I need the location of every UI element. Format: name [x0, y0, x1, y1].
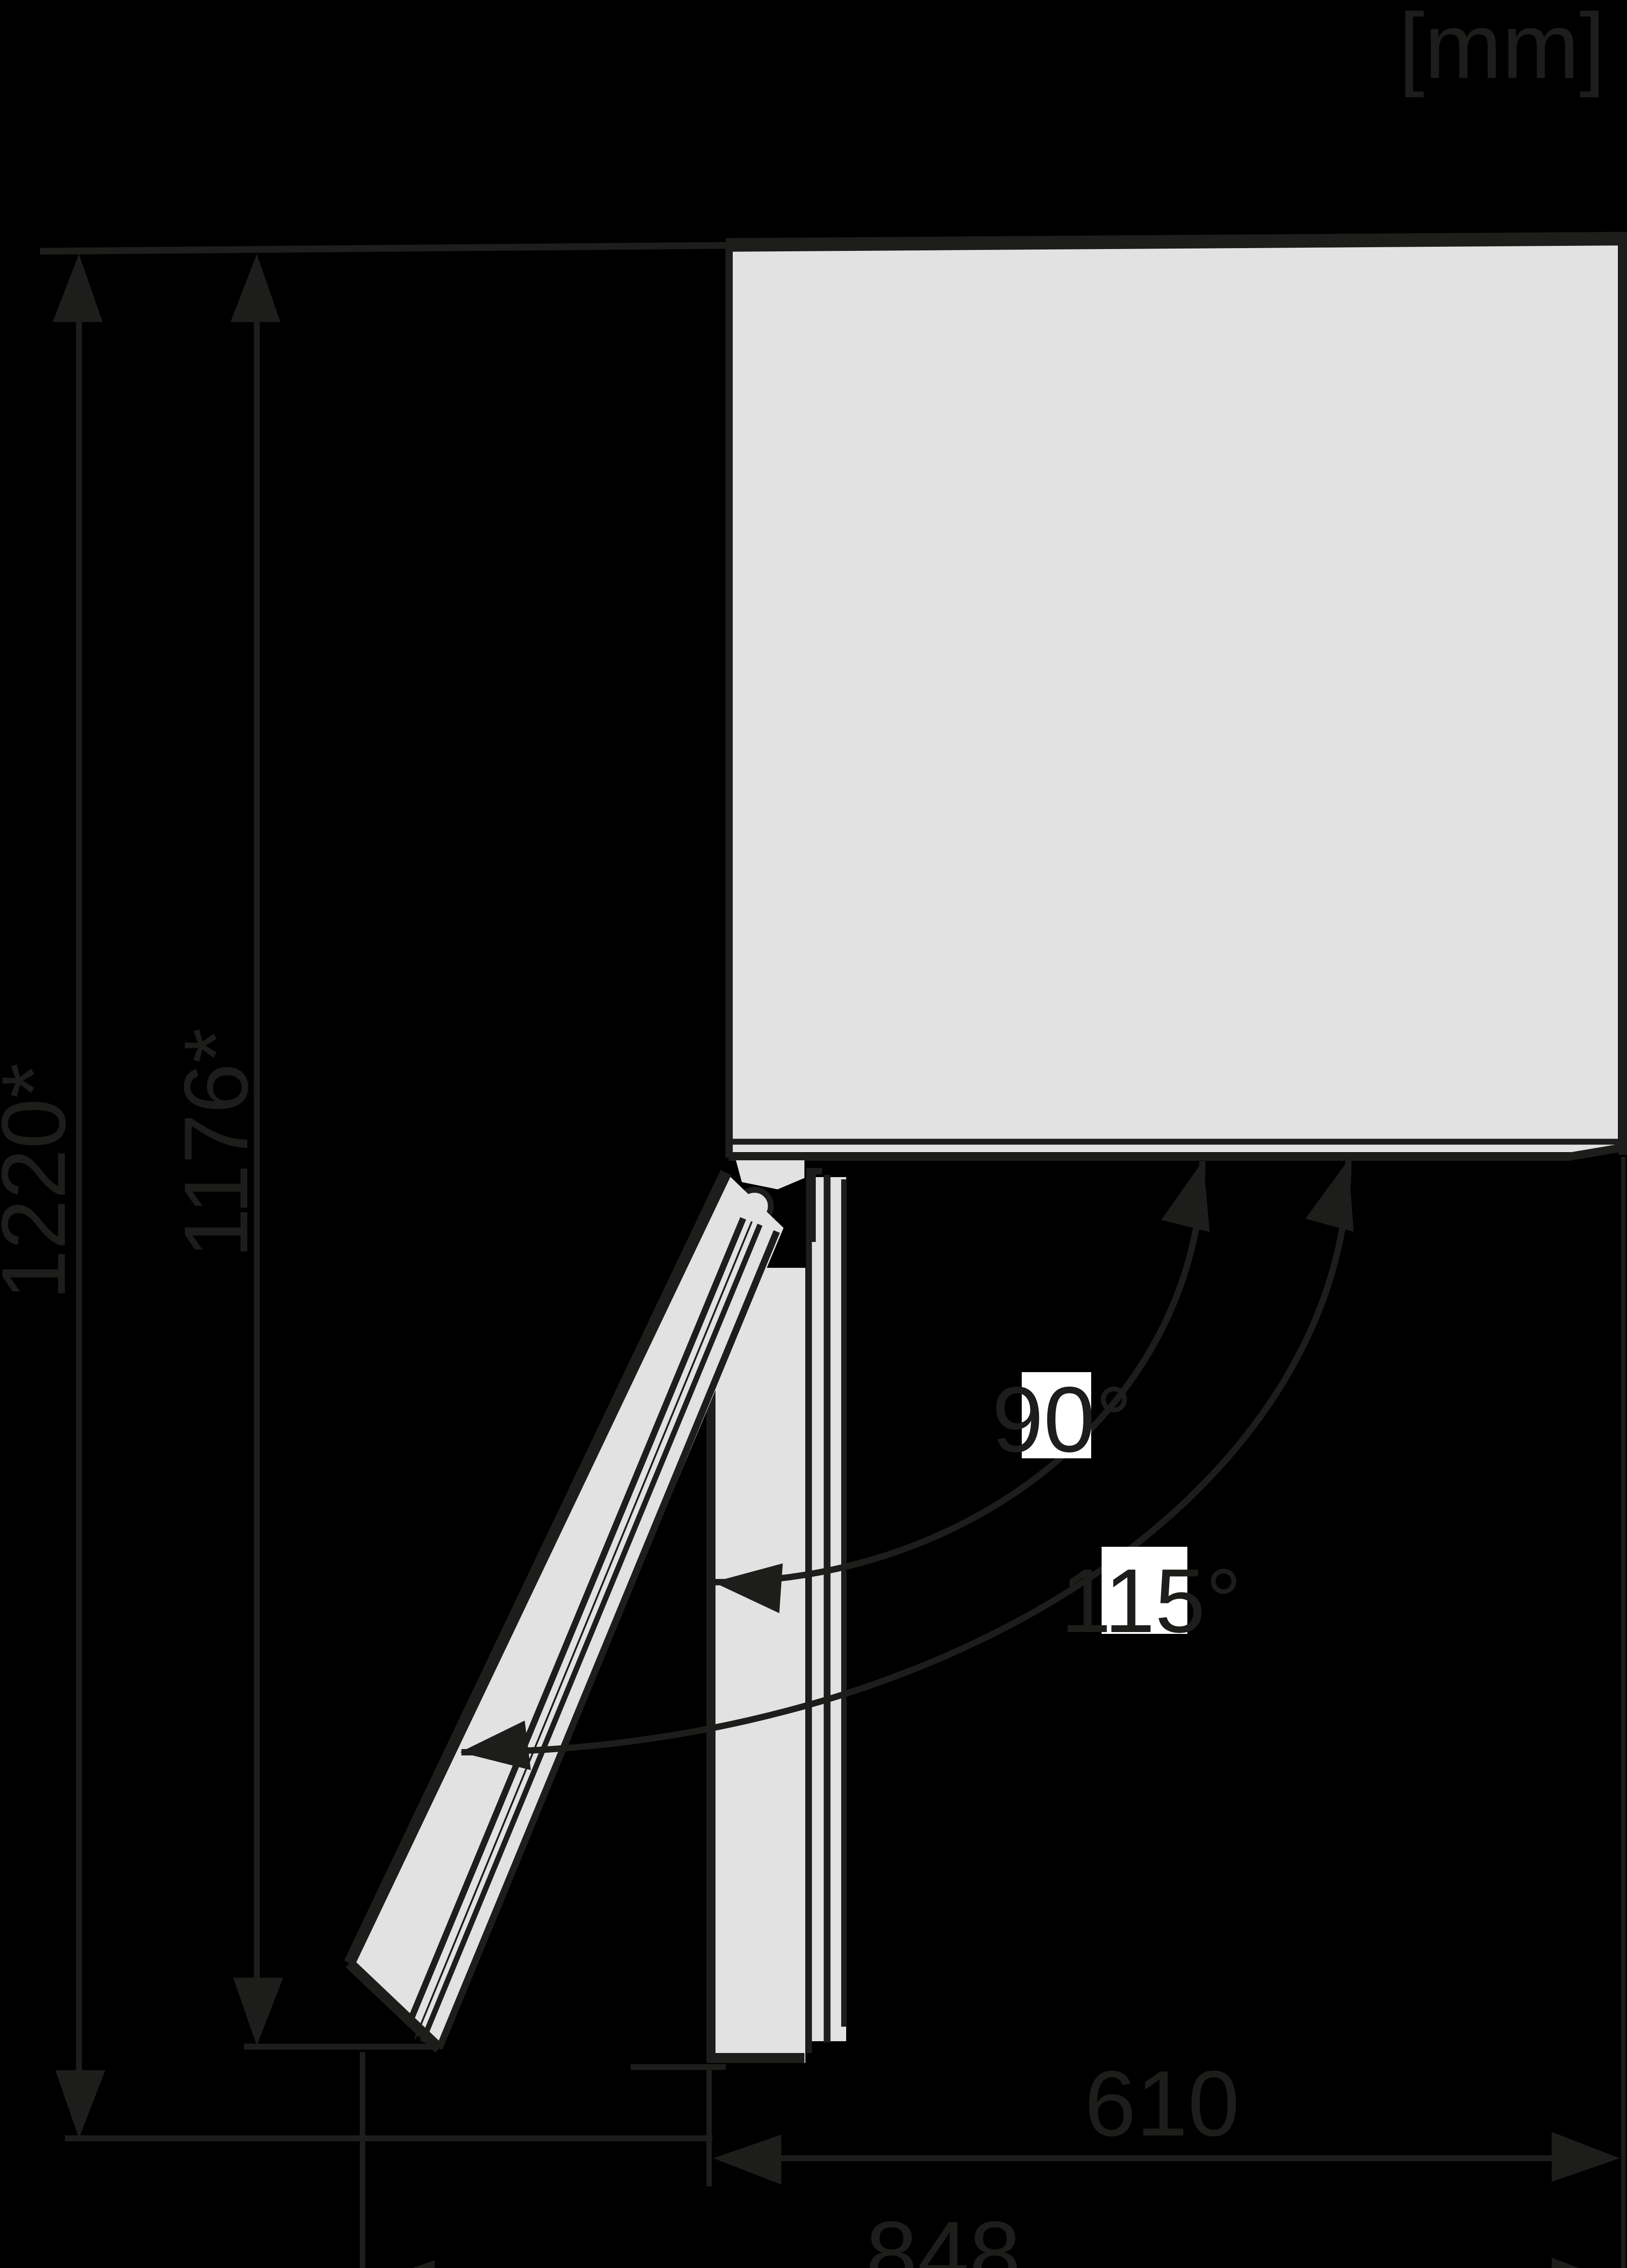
angle-115-label: 115° [1061, 1550, 1242, 1652]
cabinet-panel [732, 242, 1618, 1152]
dim-848-label: 848 [866, 2202, 1021, 2268]
dimension-diagram-canvas: 90° 115° 1220* 1176* 610 848 [mm] [0, 0, 1627, 2268]
cabinet-top-edge [726, 239, 1627, 245]
dim-1176-label: 1176* [166, 1028, 267, 1258]
cabinet-body [726, 237, 1627, 1158]
door90-panel [707, 1268, 805, 2063]
angle-90-label: 90° [992, 1368, 1132, 1471]
dim-610-label: 610 [1084, 2052, 1240, 2156]
dim-1220-label: 1220* [0, 1063, 84, 1300]
diagram-page: { "unit_badge": "[mm]", "diagram": { "ty… [0, 0, 1627, 2268]
unit-badge: [mm] [1399, 0, 1605, 98]
